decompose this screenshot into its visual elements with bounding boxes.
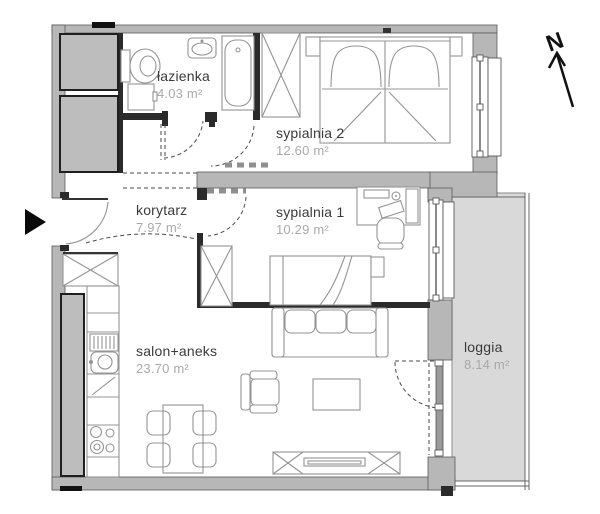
room-area: 10.29 m² <box>276 223 344 238</box>
bedroom1-window <box>429 198 454 301</box>
toilet-icon <box>121 49 160 83</box>
floor-plan: N łazienka 4.03 m² sypialnia 2 12.60 m² … <box>0 0 600 514</box>
bedroom1-door <box>207 191 246 236</box>
north-arrow-icon: N <box>542 26 573 107</box>
desk-chair-icon <box>377 218 404 249</box>
single-bed-icon <box>270 256 371 305</box>
armchair-icon <box>241 371 279 413</box>
room-area: 7.97 m² <box>136 221 187 236</box>
sofa-icon <box>272 308 388 357</box>
room-name: łazienka <box>157 68 210 84</box>
bathtub-icon <box>222 36 254 110</box>
floor-plan-drawing: N <box>0 0 600 514</box>
room-area: 23.70 m² <box>136 362 217 377</box>
room-area: 4.03 m² <box>157 87 210 102</box>
room-label-korytarz: korytarz 7.97 m² <box>136 202 187 236</box>
wardrobe-icon-bedroom1 <box>201 246 232 306</box>
room-name: loggia <box>464 339 509 355</box>
room-name: salon+aneks <box>136 343 217 359</box>
dining-chair-icon <box>147 411 216 467</box>
washing-machine-icon <box>128 84 157 110</box>
room-area: 8.14 m² <box>464 358 509 373</box>
tv-stand-icon <box>273 452 400 474</box>
nightstand-icon <box>371 257 384 277</box>
room-label-salon: salon+aneks 23.70 m² <box>136 343 217 377</box>
sink-icon <box>188 38 216 58</box>
entrance-door <box>62 199 108 244</box>
bedroom2-door <box>211 126 268 166</box>
room-label-sypialnia2: sypialnia 2 12.60 m² <box>276 125 344 159</box>
wardrobe-icon-bedroom2 <box>262 33 300 117</box>
bedroom2-window <box>472 55 501 157</box>
bathroom-door <box>161 121 203 160</box>
fridge-icon <box>63 253 118 286</box>
balcony-door <box>395 360 443 456</box>
room-label-lazienka: łazienka 4.03 m² <box>157 68 210 102</box>
coffee-table-icon <box>313 379 360 410</box>
room-name: korytarz <box>136 202 187 218</box>
room-name: sypialnia 1 <box>276 204 344 220</box>
north-label: N <box>542 26 567 56</box>
room-area: 12.60 m² <box>276 144 344 159</box>
room-name: sypialnia 2 <box>276 125 344 141</box>
room-label-sypialnia1: sypialnia 1 10.29 m² <box>276 204 344 238</box>
entrance-arrow-icon <box>25 209 46 235</box>
room-label-loggia: loggia 8.14 m² <box>464 339 509 373</box>
